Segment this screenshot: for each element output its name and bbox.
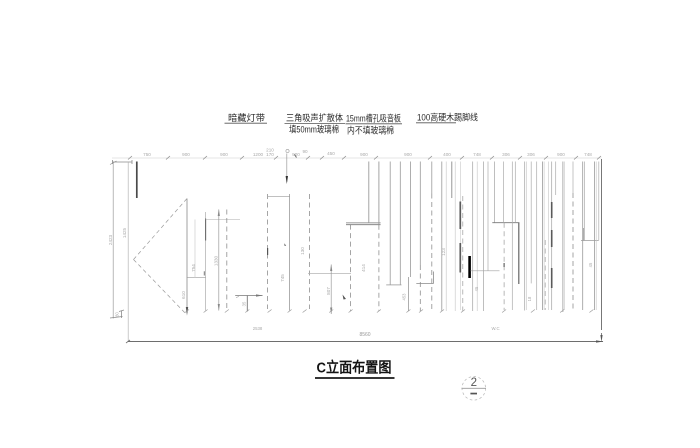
svg-text:1425: 1425 (122, 227, 127, 238)
svg-text:100高硬木踢脚线: 100高硬木踢脚线 (417, 112, 478, 123)
svg-text:754: 754 (191, 264, 196, 272)
svg-text:414: 414 (361, 264, 366, 272)
svg-text:748: 748 (584, 152, 592, 157)
svg-text:填50mm玻璃棉: 填50mm玻璃棉 (289, 124, 339, 135)
svg-text:暗藏灯带: 暗藏灯带 (228, 112, 265, 123)
svg-text:8560: 8560 (359, 332, 370, 338)
svg-text:45: 45 (474, 286, 479, 291)
svg-text:400: 400 (443, 152, 451, 157)
svg-text:1200: 1200 (253, 152, 264, 157)
svg-text:C立面布置图: C立面布置图 (317, 359, 392, 377)
svg-text:18: 18 (527, 296, 532, 301)
svg-text:80: 80 (115, 312, 120, 317)
svg-text:900: 900 (404, 152, 412, 157)
svg-text:1330: 1330 (214, 255, 219, 266)
svg-text:170: 170 (266, 152, 274, 157)
svg-text:900: 900 (220, 152, 228, 157)
svg-text:750: 750 (143, 152, 151, 157)
svg-text:2423: 2423 (108, 234, 113, 245)
svg-text:130: 130 (300, 247, 305, 255)
svg-text:900: 900 (557, 152, 565, 157)
svg-text:306: 306 (502, 152, 510, 157)
svg-text:450: 450 (327, 151, 335, 156)
svg-text:807: 807 (326, 287, 331, 295)
svg-text:745: 745 (280, 274, 285, 282)
svg-text:35: 35 (242, 301, 247, 306)
svg-text:610: 610 (181, 291, 186, 299)
svg-text:453: 453 (402, 293, 407, 301)
svg-text:2: 2 (471, 377, 477, 389)
svg-text:748: 748 (473, 152, 481, 157)
svg-text:三角吸声扩散体: 三角吸声扩散体 (286, 112, 343, 123)
svg-text:45: 45 (588, 262, 593, 267)
svg-text:900: 900 (182, 152, 190, 157)
svg-text:2538: 2538 (253, 326, 263, 331)
svg-text:900: 900 (360, 152, 368, 157)
svg-text:90: 90 (302, 149, 308, 154)
svg-text:306: 306 (527, 152, 535, 157)
svg-text:15mm槽孔吸音板: 15mm槽孔吸音板 (346, 113, 401, 124)
svg-text:内不填玻璃棉: 内不填玻璃棉 (347, 125, 394, 136)
svg-text:W.C: W.C (491, 326, 499, 331)
